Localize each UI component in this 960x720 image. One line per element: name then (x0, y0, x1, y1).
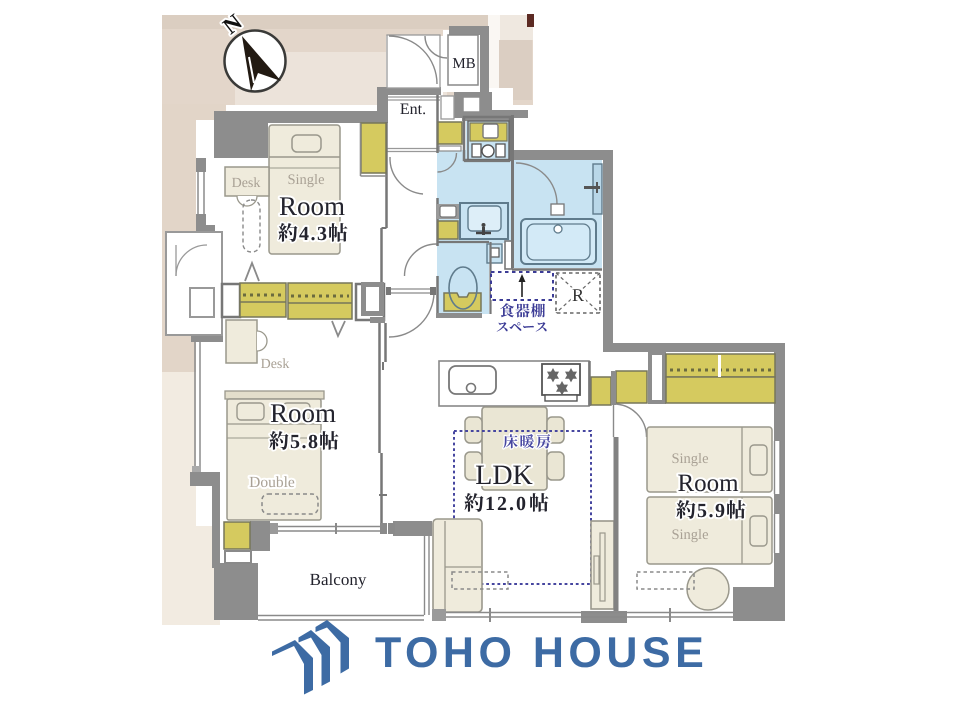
svg-text:Balcony: Balcony (310, 570, 367, 589)
svg-text:TOHO HOUSE: TOHO HOUSE (375, 629, 708, 677)
svg-text:Desk: Desk (261, 357, 290, 372)
svg-text:Ent.: Ent. (400, 101, 426, 118)
svg-text:Single: Single (287, 172, 324, 188)
svg-text:5.8: 5.8 (290, 431, 320, 453)
svg-text:Double: Double (249, 474, 295, 491)
svg-text:12.0: 12.0 (485, 493, 528, 515)
svg-text:R: R (572, 285, 584, 305)
svg-text:Room: Room (279, 191, 345, 221)
svg-text:LDK: LDK (475, 460, 533, 491)
svg-text:Room: Room (677, 470, 739, 497)
svg-text:Room: Room (270, 398, 336, 428)
svg-text:4.3: 4.3 (299, 223, 329, 245)
svg-text:MB: MB (452, 56, 475, 72)
svg-text:Single: Single (671, 451, 708, 467)
svg-text:Desk: Desk (232, 176, 261, 191)
svg-text:5.9: 5.9 (697, 500, 727, 522)
svg-text:Single: Single (671, 527, 708, 543)
